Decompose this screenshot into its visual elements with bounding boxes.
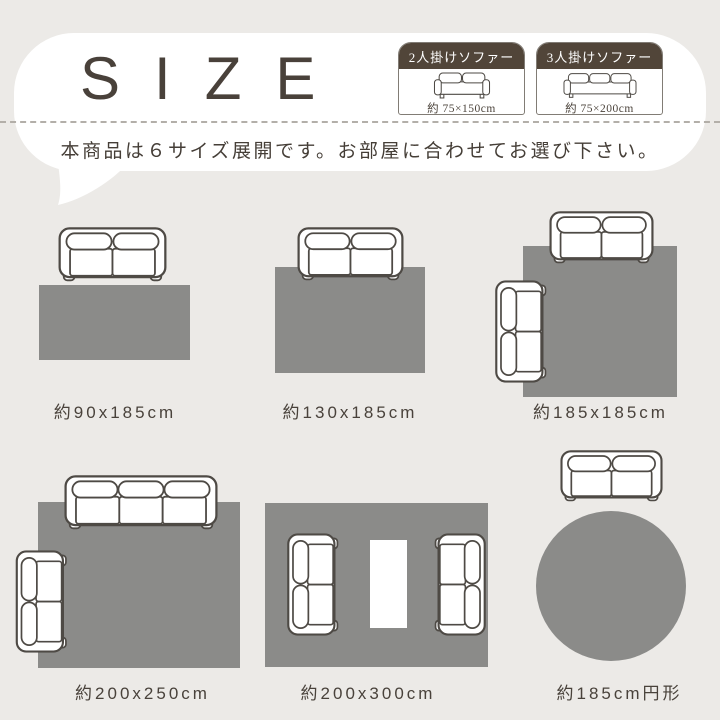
rug-size-label: 約200x300cm (258, 679, 478, 704)
legend-3seater-size: 約 75×200cm (565, 100, 634, 115)
2-seater-sofa-side-icon (16, 547, 69, 657)
rug-90x185 (39, 285, 190, 360)
3-seater-sofa-top-icon (59, 475, 223, 531)
legend-2seater-title: 2人掛けソファー (399, 43, 524, 69)
2-seater-sofa-top-icon (58, 227, 167, 283)
rug-size-label: 約185x185cm (498, 398, 703, 423)
2-seater-sofa-front-icon (433, 72, 491, 99)
2-seater-sofa-top-icon (548, 211, 655, 265)
rug-size-label: 約185cm円形 (512, 679, 720, 704)
rug-size-infographic: SIZE 本商品は６サイズ展開です。お部屋に合わせてお選び下さい。 2人掛けソフ… (0, 0, 720, 720)
speech-bubble-tail (50, 163, 150, 207)
coffee-table (370, 540, 407, 628)
page-subtitle: 本商品は６サイズ展開です。お部屋に合わせてお選び下さい。 (0, 136, 720, 163)
2-seater-sofa-top-icon (557, 450, 666, 503)
2-seater-sofa-facing-right-icon (287, 529, 340, 640)
3-seater-sofa-front-icon (563, 72, 637, 99)
page-title: SIZE (80, 44, 349, 113)
2-seater-sofa-facing-left-icon (433, 529, 486, 640)
legend-3seater-body: 約 75×200cm (537, 69, 662, 115)
rug-185-circle (536, 511, 686, 661)
2-seater-sofa-top-icon (296, 227, 405, 282)
rug-size-label: 約200x250cm (35, 679, 250, 704)
2-seater-sofa-side-icon (495, 276, 548, 387)
legend-2seater-size: 約 75×150cm (427, 100, 496, 115)
rug-size-label: 約90x185cm (15, 398, 215, 423)
dashed-divider-line (0, 121, 720, 123)
legend-2seater-body: 約 75×150cm (399, 69, 524, 115)
rug-size-label: 約130x185cm (250, 398, 450, 423)
legend-2seater-box: 2人掛けソファー 約 75×150cm (398, 42, 525, 115)
rug-130x185 (275, 267, 425, 373)
legend-3seater-title: 3人掛けソファー (537, 43, 662, 69)
legend-3seater-box: 3人掛けソファー 約 75×200cm (536, 42, 663, 115)
